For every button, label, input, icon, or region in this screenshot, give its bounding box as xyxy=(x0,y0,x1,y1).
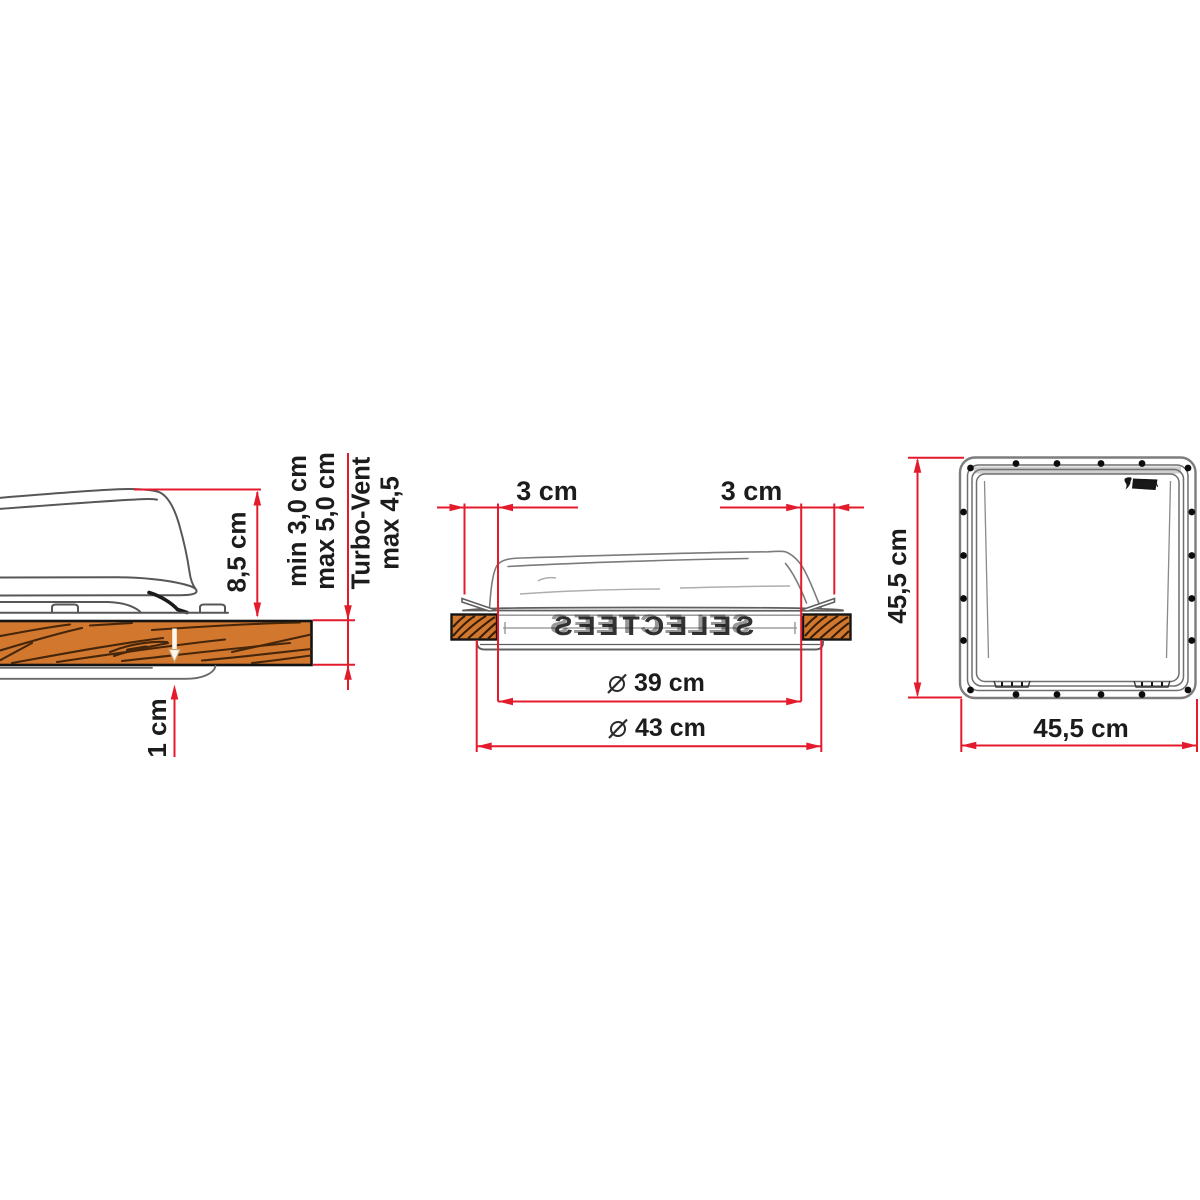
svg-text:FIAMMA: FIAMMA xyxy=(1135,482,1159,489)
svg-text:Turbo-Vent: Turbo-Vent xyxy=(348,456,376,589)
svg-text:SELECTEES: SELECTEES xyxy=(546,608,750,638)
svg-text:39 cm: 39 cm xyxy=(634,669,705,697)
svg-text:3 cm: 3 cm xyxy=(516,476,578,506)
svg-text:1 cm: 1 cm xyxy=(142,698,172,757)
svg-text:min 3,0 cm: min 3,0 cm xyxy=(284,455,312,587)
svg-text:8,5 cm: 8,5 cm xyxy=(222,512,252,593)
svg-text:max 5,0 cm: max 5,0 cm xyxy=(312,452,340,590)
svg-text:45,5 cm: 45,5 cm xyxy=(882,528,912,623)
svg-text:43 cm: 43 cm xyxy=(635,714,706,742)
svg-text:3 cm: 3 cm xyxy=(721,476,783,506)
svg-text:45,5 cm: 45,5 cm xyxy=(1033,713,1128,743)
svg-text:max 4,5: max 4,5 xyxy=(377,476,405,570)
